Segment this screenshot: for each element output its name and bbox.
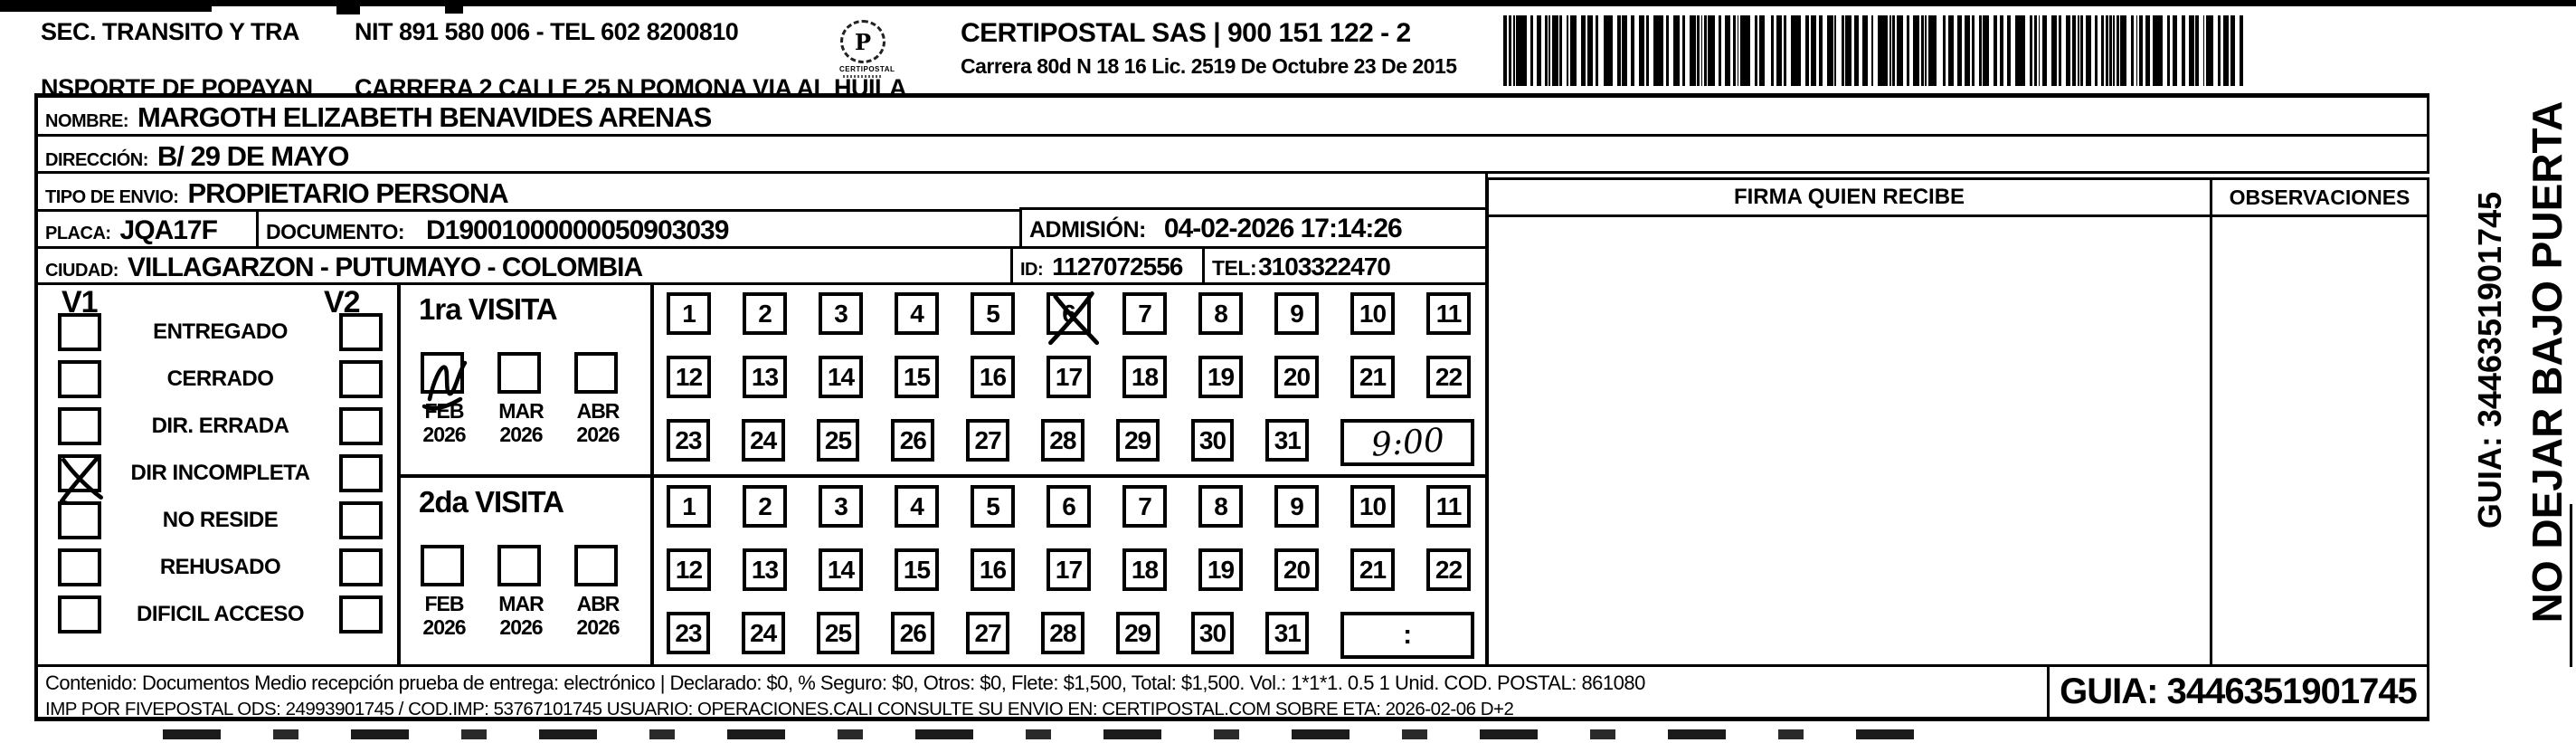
day-cell: 2 (743, 485, 787, 528)
second-visit-box: 2da VISITA FEB 2026MAR 2026ABR 2026 (398, 475, 653, 667)
day-cell: 17 (1046, 356, 1091, 398)
footer-info: Contenido: Documentos Medio recepción pr… (34, 664, 2050, 721)
status-option-label: DIFICIL ACCESO (101, 602, 339, 627)
day-cell: 15 (895, 548, 939, 591)
second-visit-months: FEB 2026MAR 2026ABR 2026 (421, 545, 650, 639)
day-cell: 11 (1426, 292, 1471, 335)
courier-address: Carrera 80d N 18 16 Lic. 2519 De Octubre… (961, 54, 1457, 79)
day-cell: 2 (743, 292, 787, 335)
day-cell: 9 (1274, 485, 1319, 528)
phone-label: TEL: (1212, 256, 1256, 281)
day-cell: 27 (966, 419, 1009, 462)
day-cell: 25 (817, 419, 860, 462)
day-cell: 21 (1350, 356, 1395, 398)
observations-column-header: OBSERVACIONES (2210, 177, 2429, 217)
day-cell: 25 (817, 612, 860, 654)
day-cell: 6 (1046, 485, 1091, 528)
status-option-label: ENTREGADO (101, 319, 339, 345)
day-cell: 21 (1350, 548, 1395, 591)
day-cell: 8 (1198, 292, 1243, 335)
day-cell: 12 (667, 548, 711, 591)
v2-checkbox (339, 454, 383, 492)
status-option-row: DIR INCOMPLETA (38, 450, 397, 497)
calendar-row: 1213141516171819202122 (667, 356, 1485, 398)
day-cell: 7 (1122, 485, 1167, 528)
day-cell: 22 (1426, 548, 1471, 591)
status-option-row: REHUSADO (38, 544, 397, 591)
recipient-address-row: DIRECCIÓN: B/ 29 DE MAYO (34, 134, 2429, 174)
day-cell: 31 (1265, 419, 1309, 462)
day-cell: 16 (971, 356, 1015, 398)
month-checkbox (421, 352, 464, 394)
day-cell: 8 (1198, 485, 1243, 528)
v2-checkbox (339, 360, 383, 398)
v2-checkbox (339, 548, 383, 586)
recipient-name-value: MARGOTH ELIZABETH BENAVIDES ARENAS (137, 101, 711, 134)
month-option: ABR 2026 (574, 545, 621, 639)
barcode (1501, 15, 2243, 86)
scan-artifact-top (445, 0, 463, 14)
id-cell: ID: 1127072556 (1010, 246, 1205, 285)
recipient-name-label: NOMBRE: (45, 111, 128, 132)
month-checkbox (421, 545, 464, 586)
day-cell: 30 (1191, 419, 1235, 462)
courier-name: CERTIPOSTAL SAS | 900 151 122 - 2 (961, 18, 1457, 49)
status-option-row: DIFICIL ACCESO (38, 591, 397, 638)
day-cell: 29 (1116, 612, 1160, 654)
delivery-status-panel: V1 V2 ENTREGADOCERRADODIR. ERRADADIR INC… (34, 282, 400, 667)
recipient-address-label: DIRECCIÓN: (45, 150, 148, 171)
month-label: MAR 2026 (497, 399, 545, 446)
plate-cell: PLACA: JQA17F (34, 209, 259, 249)
second-visit-title: 2da VISITA (419, 485, 650, 519)
status-options: ENTREGADOCERRADODIR. ERRADADIR INCOMPLET… (38, 285, 397, 638)
document-value: D19001000000050903039 (426, 215, 728, 246)
month-label: MAR 2026 (497, 592, 545, 639)
status-option-label: CERRADO (101, 367, 339, 392)
month-label: FEB 2026 (421, 399, 468, 446)
first-visit-box: 1ra VISITA FEB 2026MAR 2026ABR 2026 (398, 282, 653, 477)
shipment-type-row: TIPO DE ENVIO: PROPIETARIO PERSONA (34, 171, 1488, 212)
month-option: FEB 2026 (421, 352, 468, 446)
calendar-row: 1234567891011 (667, 292, 1485, 335)
status-option-row: CERRADO (38, 356, 397, 403)
city-cell: CIUDAD: VILLAGARZON - PUTUMAYO - COLOMBI… (34, 246, 1013, 285)
day-cell: 19 (1198, 356, 1243, 398)
logo-fineprint (843, 75, 883, 78)
day-cell: 23 (667, 419, 710, 462)
guia-number: GUIA: 3446351901745 (2060, 672, 2417, 712)
side-guia-text: GUIA: 3446351901745 (2471, 192, 2509, 529)
day-cell: 19 (1198, 548, 1243, 591)
day-cell: 27 (966, 612, 1009, 654)
day-cell: 31 (1265, 612, 1309, 654)
first-visit-title: 1ra VISITA (419, 292, 650, 327)
day-cell: 4 (895, 292, 939, 335)
signature-area (1486, 214, 2212, 667)
month-checkbox (574, 545, 618, 586)
status-option-label: DIR INCOMPLETA (101, 461, 339, 486)
month-option: MAR 2026 (497, 352, 545, 446)
day-cell: 1 (667, 292, 711, 335)
month-option: ABR 2026 (574, 352, 621, 446)
calendar-row: 2324252627282930319:00 (667, 419, 1485, 466)
month-option: MAR 2026 (497, 545, 545, 639)
day-cell: 15 (895, 356, 939, 398)
scan-artifact-bottom (163, 729, 1936, 739)
month-checkbox (497, 352, 541, 394)
logo-caption: CERTIPOSTAL (839, 65, 886, 73)
day-cell: 7 (1122, 292, 1167, 335)
scan-artifact-right (2570, 504, 2572, 667)
v2-checkbox (339, 501, 383, 539)
sender-name: SEC. TRANSITO Y TRA NSPORTE DE POPAYAN (41, 18, 313, 102)
day-cell: 28 (1041, 612, 1084, 654)
admission-value: 04-02-2026 17:14:26 (1164, 214, 1402, 244)
v1-checkbox (58, 548, 101, 586)
guia-number-box: GUIA: 3446351901745 (2047, 664, 2429, 721)
day-cell: 6 (1046, 292, 1091, 335)
status-option-row: ENTREGADO (38, 309, 397, 356)
shipment-type-value: PROPIETARIO PERSONA (187, 177, 507, 210)
city-value: VILLAGARZON - PUTUMAYO - COLOMBIA (128, 252, 642, 283)
day-cell: 11 (1426, 485, 1471, 528)
certipostal-logo-icon: P (840, 20, 885, 63)
observations-header-label: OBSERVACIONES (2230, 186, 2410, 210)
day-cell: 9 (1274, 292, 1319, 335)
month-label: FEB 2026 (421, 592, 468, 639)
status-option-label: DIR. ERRADA (101, 414, 339, 439)
shipment-type-label: TIPO DE ENVIO: (45, 187, 178, 208)
day-cell: 26 (891, 612, 934, 654)
day-cell: 24 (742, 612, 785, 654)
footer-content-line: Contenido: Documentos Medio recepción pr… (45, 672, 2047, 695)
calendar-row: 1213141516171819202122 (667, 548, 1485, 591)
sender-contact: NIT 891 580 006 - TEL 602 8200810 CARRER… (355, 18, 906, 102)
day-cell: 14 (819, 548, 863, 591)
scan-artifact-top (336, 0, 360, 14)
status-option-label: NO RESIDE (101, 508, 339, 533)
first-visit-calendar: 1234567891011121314151617181920212223242… (651, 282, 1488, 477)
observations-area (2210, 214, 2429, 667)
month-label: ABR 2026 (574, 592, 621, 639)
day-cell: 24 (742, 419, 785, 462)
time-colon: : (1403, 620, 1412, 651)
v1-checkbox (58, 501, 101, 539)
day-cell: 5 (971, 292, 1015, 335)
v1-checkbox (58, 454, 101, 492)
time-cell: : (1340, 612, 1474, 659)
day-cell: 1 (667, 485, 711, 528)
plate-value: JQA17F (120, 215, 217, 246)
status-option-label: REHUSADO (101, 555, 339, 580)
phone-cell: TEL: 3103322470 (1202, 246, 1488, 285)
day-cell: 3 (819, 485, 863, 528)
document-label: DOCUMENTO: (266, 220, 404, 244)
day-cell: 29 (1116, 419, 1160, 462)
courier-block: CERTIPOSTAL SAS | 900 151 122 - 2 Carrer… (961, 18, 1457, 79)
status-option-row: DIR. ERRADA (38, 403, 397, 450)
signature-header-label: FIRMA QUIEN RECIBE (1734, 185, 1965, 210)
day-cell: 3 (819, 292, 863, 335)
v1-checkbox (58, 407, 101, 445)
city-label: CIUDAD: (45, 261, 118, 281)
month-option: FEB 2026 (421, 545, 468, 639)
second-visit-calendar: 1234567891011121314151617181920212223242… (651, 475, 1488, 667)
time-cell: 9:00 (1340, 419, 1474, 466)
document-cell: DOCUMENTO: D19001000000050903039 (256, 209, 1022, 249)
day-cell: 10 (1350, 292, 1395, 335)
day-cell: 28 (1041, 419, 1084, 462)
admission-cell: ADMISIÓN: 04-02-2026 17:14:26 (1019, 207, 1488, 250)
phone-value: 3103322470 (1258, 252, 1390, 281)
day-cell: 26 (891, 419, 934, 462)
month-checkbox (497, 545, 541, 586)
day-cell: 23 (667, 612, 710, 654)
calendar-row: 232425262728293031: (667, 612, 1485, 659)
plate-label: PLACA: (45, 224, 111, 244)
waybill-sheet: SEC. TRANSITO Y TRA NSPORTE DE POPAYAN N… (0, 0, 2576, 743)
day-cell: 20 (1274, 356, 1319, 398)
status-option-row: NO RESIDE (38, 497, 397, 544)
day-cell: 13 (743, 356, 787, 398)
day-cell: 20 (1274, 548, 1319, 591)
day-cell: 22 (1426, 356, 1471, 398)
scan-artifact-top (109, 0, 2576, 6)
sender-nit: NIT 891 580 006 - TEL 602 8200810 (355, 18, 738, 45)
id-value: 1127072556 (1052, 252, 1182, 281)
day-cell: 16 (971, 548, 1015, 591)
day-cell: 5 (971, 485, 1015, 528)
v2-checkbox (339, 313, 383, 351)
first-visit-months: FEB 2026MAR 2026ABR 2026 (421, 352, 650, 446)
day-cell: 18 (1122, 548, 1167, 591)
month-checkbox (574, 352, 618, 394)
recipient-name-row: NOMBRE: MARGOTH ELIZABETH BENAVIDES AREN… (34, 93, 2429, 137)
day-cell: 13 (743, 548, 787, 591)
calendar-row: 1234567891011 (667, 485, 1485, 528)
day-number: 6 (1062, 300, 1075, 329)
day-cell: 30 (1191, 612, 1235, 654)
signature-column-header: FIRMA QUIEN RECIBE (1486, 177, 2212, 217)
v2-checkbox (339, 595, 383, 633)
v1-checkbox (58, 313, 101, 351)
admission-label: ADMISIÓN: (1029, 217, 1146, 243)
handwritten-time: 9:00 (1369, 422, 1445, 464)
id-label: ID: (1020, 260, 1043, 281)
v1-checkbox (58, 595, 101, 633)
side-warning-text: NO DEJAR BAJO PUERTA (2523, 101, 2571, 624)
certipostal-logo: P CERTIPOSTAL (839, 20, 886, 78)
month-label: ABR 2026 (574, 399, 621, 446)
day-cell: 18 (1122, 356, 1167, 398)
day-cell: 12 (667, 356, 711, 398)
day-cell: 10 (1350, 485, 1395, 528)
day-cell: 4 (895, 485, 939, 528)
footer-imp-line: IMP POR FIVEPOSTAL ODS: 24993901745 / CO… (45, 699, 2047, 720)
sender-name-line1: SEC. TRANSITO Y TRA (41, 18, 299, 45)
v2-checkbox (339, 407, 383, 445)
day-cell: 14 (819, 356, 863, 398)
recipient-address-value: B/ 29 DE MAYO (157, 140, 349, 173)
v1-checkbox (58, 360, 101, 398)
day-cell: 17 (1046, 548, 1091, 591)
